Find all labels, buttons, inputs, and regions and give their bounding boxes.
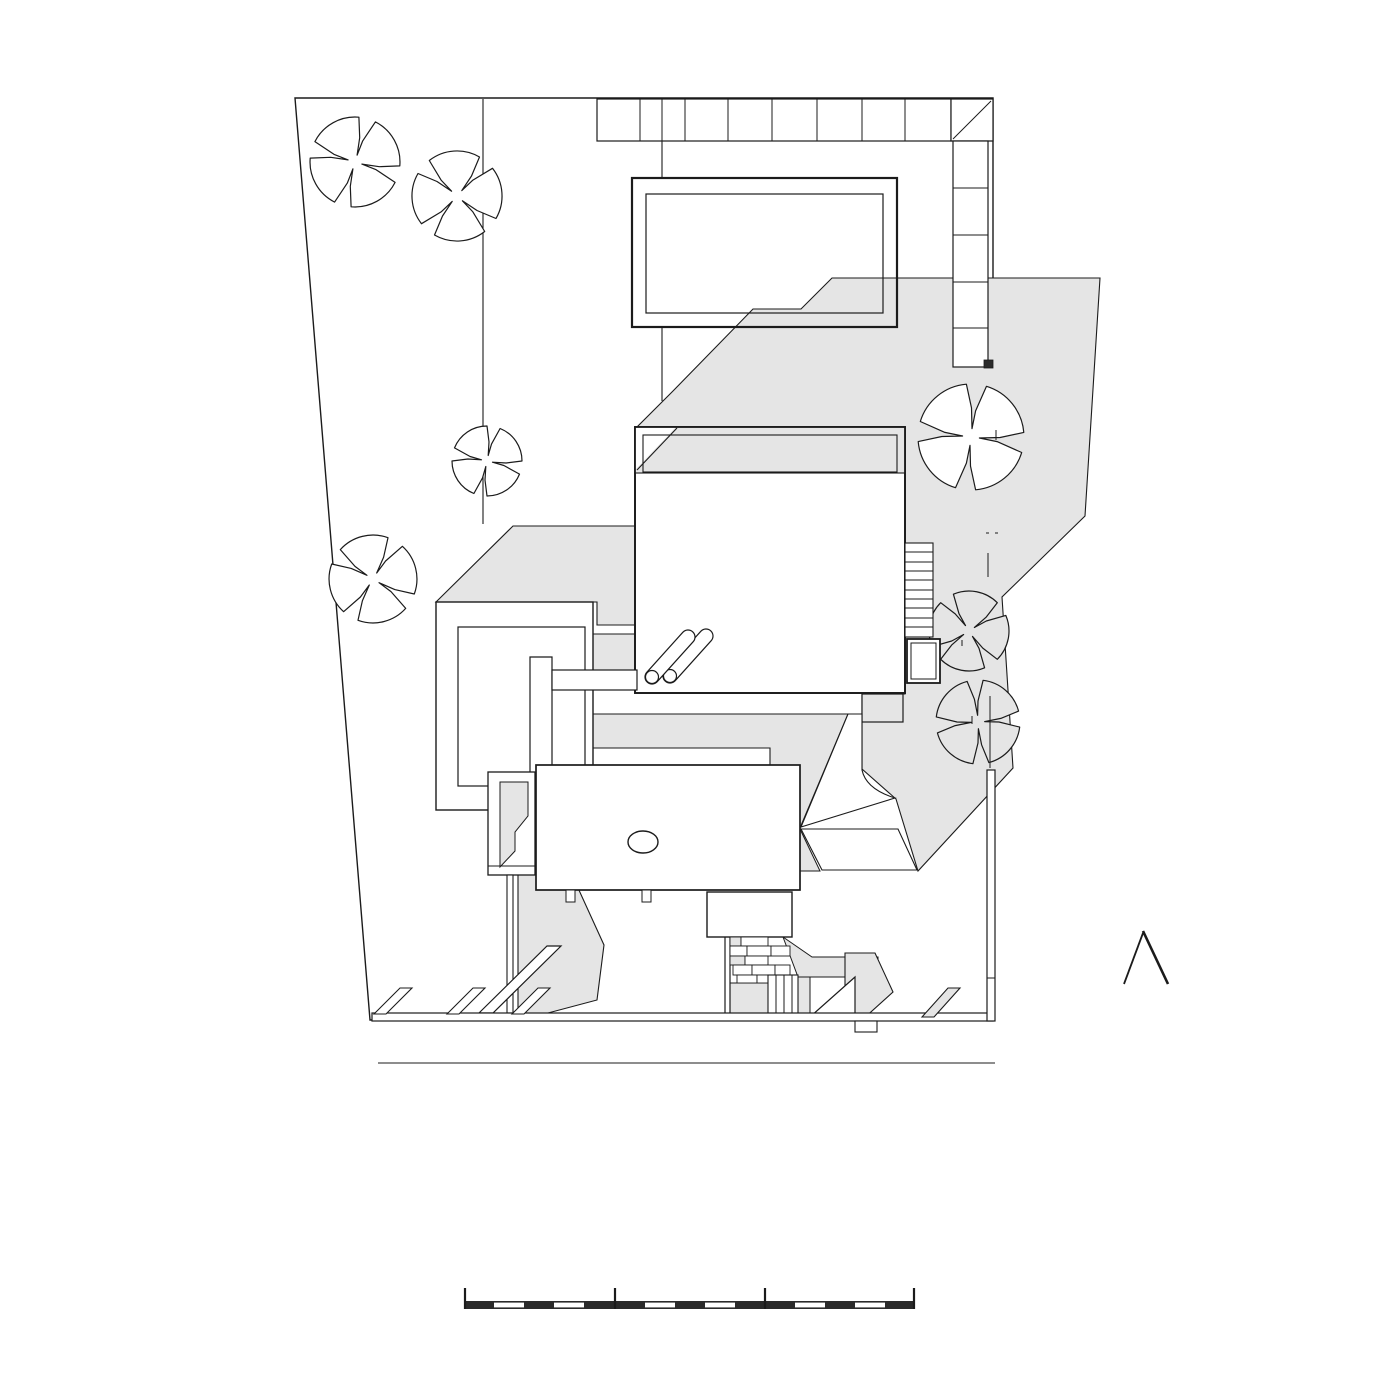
deck-leg bbox=[566, 890, 575, 902]
page-root bbox=[0, 0, 1400, 1400]
stone-step bbox=[775, 965, 790, 975]
stone-step bbox=[747, 946, 771, 956]
stone-step bbox=[730, 946, 747, 956]
stone-step bbox=[733, 965, 752, 975]
scale-bar-band bbox=[464, 1301, 915, 1309]
stone-step bbox=[730, 956, 745, 965]
stair-flight bbox=[768, 975, 798, 1017]
scale-bar-segment bbox=[855, 1303, 885, 1308]
site-bottom-wall bbox=[372, 1013, 993, 1021]
stone-step bbox=[771, 946, 790, 956]
paving-end-block bbox=[984, 360, 993, 368]
tree-northwest bbox=[310, 117, 400, 207]
deck-leg bbox=[642, 890, 651, 902]
scale-bar-segment bbox=[494, 1303, 524, 1308]
stone-step bbox=[745, 956, 768, 965]
wall-foot bbox=[855, 1021, 877, 1032]
stair-box bbox=[907, 639, 940, 683]
stair-shadow-foot bbox=[730, 983, 768, 1013]
tree-west-lower bbox=[329, 535, 417, 623]
building-roof-band bbox=[635, 427, 905, 473]
lawn-trapezoid bbox=[801, 829, 917, 870]
scale-bar-segment bbox=[795, 1303, 825, 1308]
log-front-end bbox=[646, 671, 659, 684]
deck bbox=[536, 765, 800, 890]
north-arrow-right-stroke bbox=[1143, 931, 1168, 984]
frame-mid-rail bbox=[552, 670, 637, 690]
paving-strip-top bbox=[597, 99, 951, 141]
stair-landing bbox=[707, 892, 792, 937]
site-right-wall bbox=[987, 770, 995, 1021]
stone-step bbox=[737, 975, 757, 983]
stone-step bbox=[752, 965, 775, 975]
frame-west-inner bbox=[458, 627, 585, 786]
terrace-step bbox=[862, 694, 903, 722]
tree-east-middle bbox=[929, 591, 1009, 671]
north-arrow-left-stroke bbox=[1124, 933, 1143, 984]
scale-bar-segment bbox=[705, 1303, 735, 1308]
stone-step bbox=[730, 937, 741, 946]
stair-shadow-side bbox=[798, 977, 810, 1017]
scale-bar-segment bbox=[554, 1303, 584, 1308]
scale-bar-segment bbox=[645, 1303, 675, 1308]
paving-strip-right bbox=[953, 141, 988, 367]
stone-step bbox=[741, 937, 768, 946]
site-plan-drawing bbox=[0, 0, 1400, 1400]
tree-west-middle bbox=[452, 426, 522, 496]
